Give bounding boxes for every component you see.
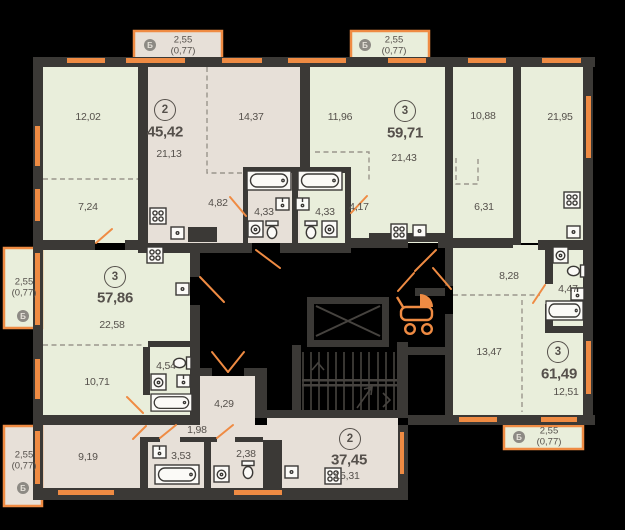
washing-machine-icon bbox=[553, 247, 568, 263]
kitchen-sink-icon bbox=[171, 227, 184, 239]
room-area-label: 21,13 bbox=[156, 148, 181, 160]
kitchen-counter bbox=[188, 227, 217, 242]
floor-plan: 2 45,42 21,13 14,37 4,82 4,33 3 59,71 11… bbox=[0, 0, 625, 530]
apartment-total-area[interactable]: 37,45 bbox=[331, 452, 367, 469]
washbasin-icon bbox=[296, 198, 309, 210]
balcony-reduced-area: (0,77) bbox=[171, 45, 196, 56]
room-area-label: 10,88 bbox=[470, 110, 495, 122]
bathtub-icon bbox=[298, 171, 342, 190]
stroller-icon bbox=[397, 294, 433, 334]
elevator-shaft-icon bbox=[307, 297, 389, 347]
room-area-label: 9,19 bbox=[78, 451, 98, 463]
balcony-reduced-area: (0,77) bbox=[537, 436, 562, 447]
washing-machine-icon bbox=[214, 466, 229, 482]
balcony-area: 2,55 bbox=[385, 35, 404, 46]
apartment-rooms-badge[interactable]: 2 bbox=[154, 99, 176, 121]
balcony-letter-badge: Б bbox=[144, 39, 156, 51]
room-area-label: 14,37 bbox=[238, 111, 263, 123]
apartment-rooms-badge[interactable]: 3 bbox=[104, 266, 126, 288]
apartment-total-area[interactable]: 45,42 bbox=[147, 124, 183, 141]
apartment-rooms-badge[interactable]: 3 bbox=[547, 341, 569, 363]
balcony-area-label: 2,55 (0,77) bbox=[537, 427, 562, 448]
washing-machine-icon bbox=[248, 221, 263, 237]
room-area-label: 6,31 bbox=[474, 201, 494, 213]
washbasin-icon bbox=[177, 375, 190, 387]
balcony-letter-badge: Б bbox=[17, 310, 29, 322]
room-area-label: 4,29 bbox=[214, 398, 234, 410]
room-area-label: 12,51 bbox=[553, 386, 578, 398]
stove-icon bbox=[147, 247, 163, 263]
washing-machine-icon bbox=[322, 221, 337, 237]
room-area-label: 4,17 bbox=[349, 201, 369, 213]
room-area-label: 11,96 bbox=[328, 111, 353, 123]
apartment-total-area[interactable]: 57,86 bbox=[97, 290, 133, 307]
room-area-label: 13,47 bbox=[476, 346, 501, 358]
washing-machine-icon bbox=[151, 374, 166, 390]
room-area-label: 21,95 bbox=[547, 111, 572, 123]
balcony-letter-badge: Б bbox=[17, 482, 29, 494]
balcony-reduced-area: (0,77) bbox=[12, 460, 37, 471]
balcony-area-label: 2,55 (0,77) bbox=[12, 451, 37, 472]
washbasin-icon bbox=[276, 198, 289, 210]
apartment-rooms-badge[interactable]: 3 bbox=[394, 100, 416, 122]
room-area-label: 8,28 bbox=[499, 270, 519, 282]
room-area-label: 4,82 bbox=[208, 197, 228, 209]
room-area-label: 4,33 bbox=[315, 206, 335, 218]
room-area-label: 4,54 bbox=[156, 360, 176, 372]
bathtub-icon bbox=[546, 301, 583, 320]
balcony-reduced-area: (0,77) bbox=[382, 45, 407, 56]
room-area-label: 1,98 bbox=[187, 424, 207, 436]
toilet-icon bbox=[242, 461, 254, 479]
kitchen-sink-icon bbox=[567, 226, 580, 238]
room-area-label: 21,43 bbox=[391, 152, 416, 164]
stove-icon bbox=[150, 208, 166, 224]
bathtub-icon bbox=[155, 465, 199, 484]
balcony-area: 2,55 bbox=[540, 426, 559, 437]
balcony-reduced-area: (0,77) bbox=[12, 287, 37, 298]
room-area-label: 4,33 bbox=[254, 206, 274, 218]
toilet-icon bbox=[568, 265, 586, 277]
balcony-area: 2,55 bbox=[15, 277, 34, 288]
stove-icon bbox=[391, 224, 407, 240]
balcony-area-label: 2,55 (0,77) bbox=[12, 278, 37, 299]
room-area-label: 7,24 bbox=[78, 201, 98, 213]
washbasin-icon bbox=[153, 446, 166, 458]
room-area-label: 3,53 bbox=[171, 450, 191, 462]
bathtub-icon bbox=[151, 394, 192, 411]
stove-icon bbox=[564, 192, 580, 208]
balcony-area-label: 2,55 (0,77) bbox=[382, 36, 407, 57]
room-area-label: 22,58 bbox=[99, 319, 124, 331]
balcony-letter-badge: Б bbox=[513, 431, 525, 443]
balcony-letter-badge: Б bbox=[359, 39, 371, 51]
room-area-label: 2,38 bbox=[236, 448, 256, 460]
balcony-area: 2,55 bbox=[15, 450, 34, 461]
room-area-label: 12,02 bbox=[75, 111, 100, 123]
kitchen-sink-icon bbox=[176, 283, 189, 295]
apartment-rooms-badge[interactable]: 2 bbox=[339, 428, 361, 450]
room-area-label: 10,71 bbox=[84, 376, 109, 388]
bathtub-icon bbox=[247, 171, 291, 190]
staircase-icon bbox=[302, 352, 397, 410]
apartment-total-area[interactable]: 59,71 bbox=[387, 125, 423, 142]
balcony-area: 2,55 bbox=[174, 35, 193, 46]
kitchen-sink-icon bbox=[285, 466, 298, 478]
apartment-total-area[interactable]: 61,49 bbox=[541, 366, 577, 383]
room-area-label: 4,47 bbox=[558, 283, 578, 295]
kitchen-sink-icon bbox=[413, 225, 426, 237]
toilet-icon bbox=[305, 221, 317, 239]
balcony-area-label: 2,55 (0,77) bbox=[171, 36, 196, 57]
room-area-label: 15,31 bbox=[334, 470, 359, 482]
toilet-icon bbox=[266, 221, 278, 239]
